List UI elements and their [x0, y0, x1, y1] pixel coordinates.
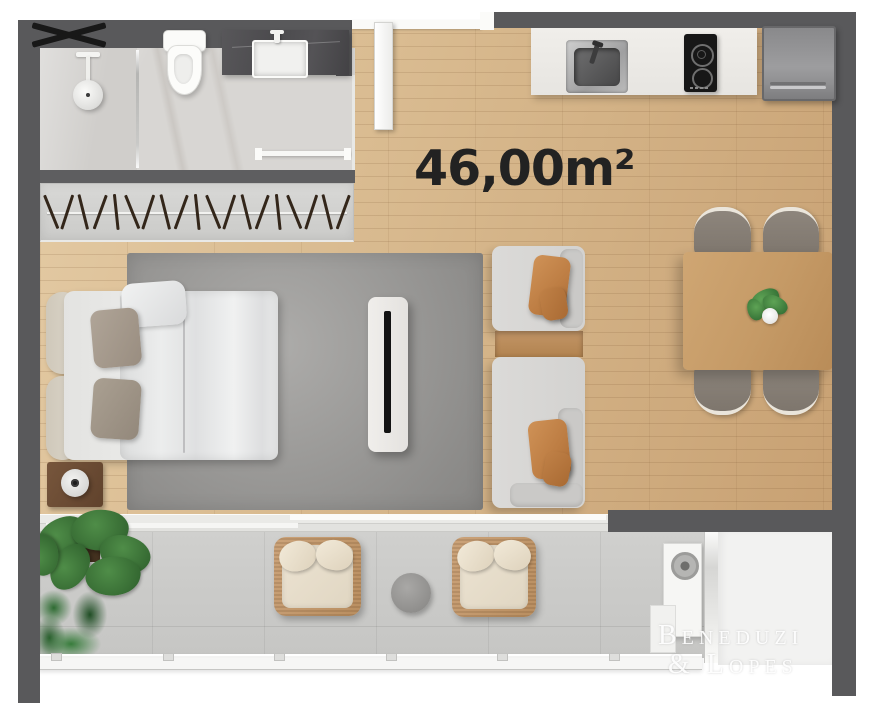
toilet — [167, 45, 202, 95]
railing-post — [51, 653, 62, 661]
bed-pillow — [90, 377, 142, 440]
kitchen-counter — [531, 28, 757, 95]
balcony-armchair — [452, 537, 536, 617]
vanity-faucet — [274, 30, 280, 43]
vanity-sink — [252, 40, 308, 78]
railing-post — [386, 653, 397, 661]
wardrobe-hangers — [51, 184, 343, 240]
dining-chair — [694, 207, 751, 257]
cooktop-controls — [690, 87, 693, 89]
tv-screen — [384, 311, 391, 433]
exterior-wall — [832, 12, 856, 696]
railing-post — [609, 653, 620, 661]
area-label: 46,00m² — [414, 140, 635, 197]
refrigerator — [762, 26, 836, 101]
watermark-line-1: Beneduzi — [658, 622, 803, 651]
door-cap — [344, 148, 351, 160]
sofa-wood-tray — [495, 331, 583, 357]
dining-chair — [763, 207, 819, 257]
balcony-railing — [38, 654, 702, 670]
watermark-line-2: & Lopes — [668, 651, 803, 680]
wardrobe — [40, 183, 354, 242]
bed-pillow — [90, 307, 143, 369]
entrance-door — [374, 22, 393, 130]
bathroom-sliding-door — [257, 151, 351, 156]
exterior-wall — [608, 510, 856, 532]
side-table-pouf — [391, 573, 431, 613]
bathroom-door-line — [352, 75, 355, 170]
sofa-backrest — [510, 483, 583, 507]
railing-post — [163, 653, 174, 661]
burner-icon — [691, 44, 714, 67]
accent-pillow — [539, 286, 570, 322]
watermark: Beneduzi & Lopes — [658, 622, 803, 679]
floor-plan-render: 46,00m² Beneduzi & Lopes — [0, 0, 872, 720]
railing-post — [274, 653, 285, 661]
dining-chair — [694, 364, 751, 415]
door-cap — [255, 148, 262, 160]
balcony-armchair — [274, 537, 361, 616]
interior-wall — [40, 170, 355, 183]
entrance-threshold — [352, 20, 482, 29]
shower-head-icon — [73, 80, 103, 110]
shower-glass-partition — [136, 50, 139, 168]
plant-pot — [762, 308, 778, 324]
balcony-tile-line — [40, 626, 708, 627]
sliding-door-panel — [290, 515, 606, 520]
railing-post — [497, 653, 508, 661]
table-lamp — [61, 469, 89, 497]
burner-icon — [692, 68, 713, 89]
exterior-wall — [18, 20, 40, 703]
fan-icon — [671, 552, 699, 580]
shaft-x-icon — [33, 24, 105, 46]
door-jamb — [480, 12, 494, 30]
dining-chair — [763, 364, 819, 415]
